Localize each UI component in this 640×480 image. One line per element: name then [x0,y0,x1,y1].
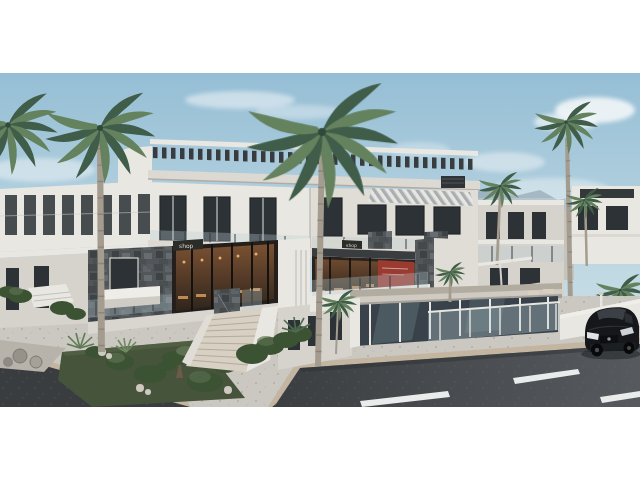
render-photo: shop [0,73,640,407]
car-badge [607,337,611,341]
upper-windows-right [358,205,460,235]
shop-sign-right-text: shop [346,243,357,248]
letterbox-bottom [0,407,640,480]
shop-sign-left-text: shop [179,242,194,250]
letterbox-top [0,0,640,73]
scene-svg: shop [0,73,640,407]
corner-pier [278,238,310,312]
page: { "meta": { "type": "architectural-3d-re… [0,0,640,480]
roof-vent-grille [441,176,465,188]
